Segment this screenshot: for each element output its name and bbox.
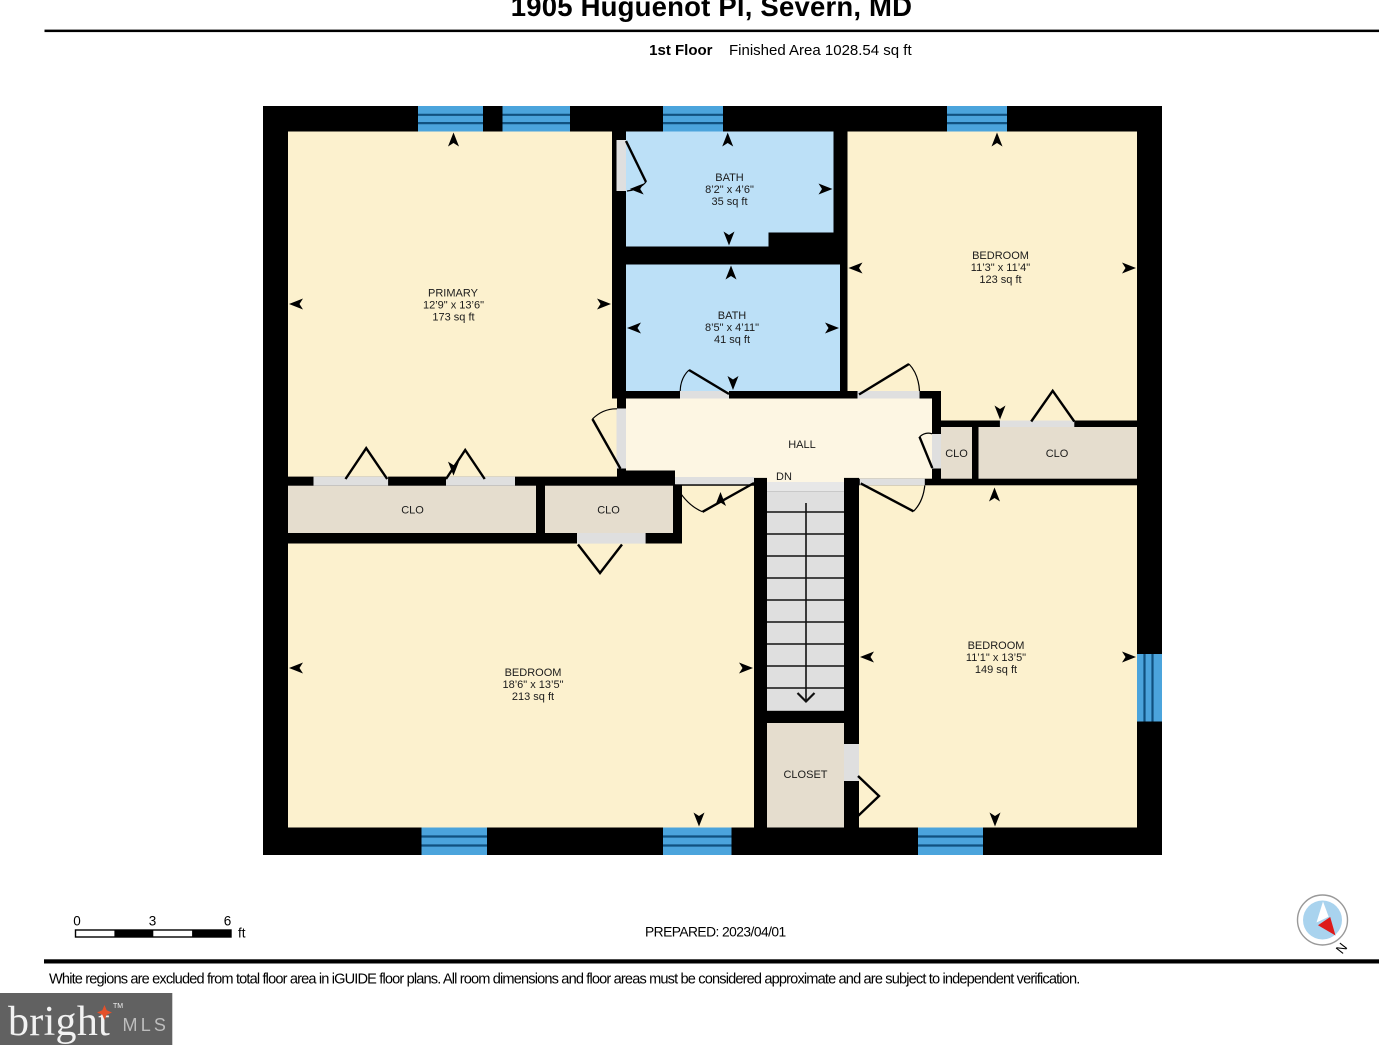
svg-text:1905 Huguenot Pl, Severn, MD: 1905 Huguenot Pl, Severn, MD [511, 0, 912, 22]
svg-text:PREPARED: 2023/04/01: PREPARED: 2023/04/01 [645, 924, 786, 939]
svg-text:1st Floor: 1st Floor [649, 42, 713, 59]
svg-text:DN: DN [776, 471, 792, 483]
svg-text:BEDROOM: BEDROOM [972, 250, 1029, 262]
svg-text:CLO: CLO [401, 505, 424, 517]
svg-text:11’1" x 13’5": 11’1" x 13’5" [966, 652, 1026, 664]
svg-text:bright: bright [8, 999, 110, 1045]
svg-text:MLS: MLS [123, 1015, 170, 1035]
svg-text:HALL: HALL [788, 439, 816, 451]
svg-text:ft: ft [238, 926, 246, 941]
svg-text:0: 0 [73, 914, 81, 929]
svg-text:Finished Area 1028.54 sq ft: Finished Area 1028.54 sq ft [729, 42, 912, 59]
svg-text:BATH: BATH [718, 310, 747, 322]
svg-text:CLO: CLO [597, 505, 620, 517]
svg-text:35 sq ft: 35 sq ft [711, 196, 747, 208]
svg-text:8’2" x 4’6": 8’2" x 4’6" [705, 184, 754, 196]
svg-text:8’5" x 4’11": 8’5" x 4’11" [705, 322, 759, 334]
svg-text:BATH: BATH [715, 172, 744, 184]
svg-text:White regions are excluded fro: White regions are excluded from total fl… [49, 972, 1079, 988]
svg-text:149 sq ft: 149 sq ft [975, 664, 1017, 676]
svg-text:N: N [1333, 940, 1351, 957]
svg-text:41 sq ft: 41 sq ft [714, 334, 750, 346]
svg-text:PRIMARY: PRIMARY [428, 287, 479, 299]
svg-text:18’6" x 13’5": 18’6" x 13’5" [502, 679, 563, 691]
svg-text:BEDROOM: BEDROOM [505, 667, 562, 679]
svg-text:123 sq ft: 123 sq ft [979, 274, 1021, 286]
svg-text:CLOSET: CLOSET [783, 769, 827, 781]
svg-text:12’9" x 13’6": 12’9" x 13’6" [423, 300, 484, 312]
svg-text:213 sq ft: 213 sq ft [512, 691, 554, 703]
svg-text:CLO: CLO [1046, 448, 1069, 460]
svg-text:TM: TM [113, 1003, 123, 1010]
svg-text:CLO: CLO [945, 448, 968, 460]
svg-text:11’3" x 11’4": 11’3" x 11’4" [971, 262, 1030, 274]
svg-text:173 sq ft: 173 sq ft [432, 312, 474, 324]
svg-text:3: 3 [149, 914, 157, 929]
svg-text:6: 6 [224, 914, 232, 929]
svg-text:BEDROOM: BEDROOM [968, 640, 1025, 652]
